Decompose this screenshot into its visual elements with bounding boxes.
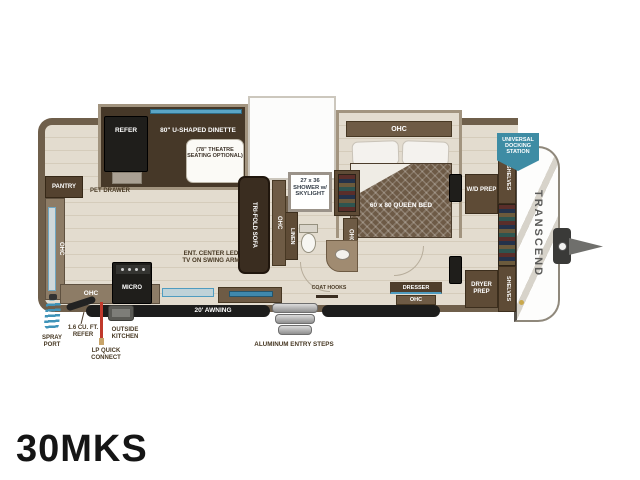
shower: 27 x 36 SHOWER w/ SKYLIGHT bbox=[288, 172, 332, 212]
dinette-window bbox=[150, 109, 242, 114]
dresser-label: DRESSER bbox=[391, 283, 441, 294]
bed-sheet-fold bbox=[351, 164, 411, 198]
bath-vanity bbox=[326, 240, 358, 272]
lp-connect-pipe-icon bbox=[100, 302, 103, 340]
wd-prep: W/D PREP bbox=[465, 174, 498, 214]
dresser: DRESSER bbox=[390, 282, 442, 294]
wardrobe-shelves-bottom: SHELVES bbox=[498, 266, 516, 312]
theatre-seating-label: (78" THEATRE SEATING OPTIONAL) bbox=[187, 147, 243, 159]
bath-slide-roof bbox=[248, 96, 336, 180]
docking-station-label: UNIVERSAL DOCKING STATION bbox=[502, 137, 534, 155]
pet-drawer-label: PET DRAWER bbox=[90, 188, 146, 195]
outside-kitchen-griddle-icon bbox=[108, 305, 134, 321]
shower-label: 27 x 36 SHOWER w/ SKYLIGHT bbox=[291, 178, 329, 198]
kitchen-counter-blue bbox=[162, 288, 214, 297]
linen-label: LINEN bbox=[285, 213, 297, 259]
wardrobe-clothes bbox=[498, 204, 516, 266]
queen-bed-label: 60 x 80 QUEEN BED bbox=[351, 202, 451, 209]
refrigerator: REFER bbox=[104, 116, 148, 172]
wd-prep-label: W/D PREP bbox=[466, 187, 497, 194]
refrigerator-base bbox=[112, 172, 142, 184]
kitchen-countertop bbox=[48, 207, 56, 291]
queen-bed: 60 x 80 QUEEN BED bbox=[350, 163, 452, 238]
nightstand-top bbox=[449, 174, 462, 202]
theatre-seating-option: (78" THEATRE SEATING OPTIONAL) bbox=[186, 139, 244, 183]
shelves-bottom-label: SHELVES bbox=[499, 267, 515, 311]
microwave-range: MICRO bbox=[112, 262, 152, 304]
dryer-prep-label: DRYER PREP bbox=[466, 282, 497, 295]
entry-steps-label: ALUMINUM ENTRY STEPS bbox=[246, 341, 342, 348]
nightstand-bottom bbox=[449, 256, 462, 284]
outside-kitchen-label: OUTSIDE KITCHEN bbox=[104, 327, 146, 341]
pantry: PANTRY bbox=[45, 176, 83, 198]
lp-connect-tip-icon bbox=[99, 338, 104, 345]
ent-center-note: ENT. CENTER LED TV ON SWING ARM bbox=[182, 250, 240, 264]
hitch-tongue-icon bbox=[569, 238, 603, 255]
ent-center-cabinet bbox=[218, 287, 282, 303]
dryer-prep: DRYER PREP bbox=[465, 270, 498, 308]
sofa-ohc-label: OHC bbox=[273, 181, 285, 265]
bath-closet bbox=[334, 170, 360, 216]
tv-icon bbox=[229, 291, 273, 297]
awning-bar-right bbox=[322, 305, 440, 317]
pantry-label: PANTRY bbox=[46, 177, 82, 197]
hitch-jack-icon bbox=[558, 242, 567, 251]
range-burners-icon bbox=[116, 265, 150, 274]
brand-logo: TRANSCEND bbox=[517, 148, 558, 320]
cap-screw-bottom bbox=[519, 300, 524, 305]
model-name: 30MKS bbox=[16, 428, 148, 471]
dinette-label: 80" U-SHAPED DINETTE bbox=[150, 127, 246, 134]
bed-ohc: OHC bbox=[346, 121, 452, 137]
dresser-ohc: OHC bbox=[396, 295, 436, 305]
spray-port-cap-icon bbox=[49, 294, 57, 300]
bath-closet-clothes bbox=[338, 174, 356, 212]
sofa-label: TRI-FOLD SOFA bbox=[240, 178, 268, 272]
bath-sink bbox=[335, 249, 350, 260]
toilet bbox=[301, 233, 316, 253]
tri-fold-sofa: TRI-FOLD SOFA bbox=[238, 176, 270, 274]
coat-hooks-label: COAT HOOKS bbox=[306, 286, 352, 292]
floorplan-page: { "model": "30MKS", "brand": "TRANSCEND"… bbox=[0, 0, 640, 480]
refrigerator-label: REFER bbox=[105, 127, 147, 134]
micro-label: MICRO bbox=[113, 285, 151, 292]
lp-connect-label: LP QUICK CONNECT bbox=[82, 348, 130, 362]
spray-port-coil-icon bbox=[43, 298, 61, 331]
coat-hooks-bar bbox=[316, 295, 338, 298]
linen-cabinet: LINEN bbox=[284, 212, 298, 260]
dresser-ohc-label: OHC bbox=[397, 296, 435, 305]
kitchen-ohc-wall: OHC bbox=[56, 229, 66, 269]
entry-steps-icon bbox=[272, 303, 318, 337]
outside-refer-pointer bbox=[81, 312, 85, 324]
toilet-tank bbox=[299, 224, 318, 233]
sofa-ohc: OHC bbox=[272, 180, 286, 266]
